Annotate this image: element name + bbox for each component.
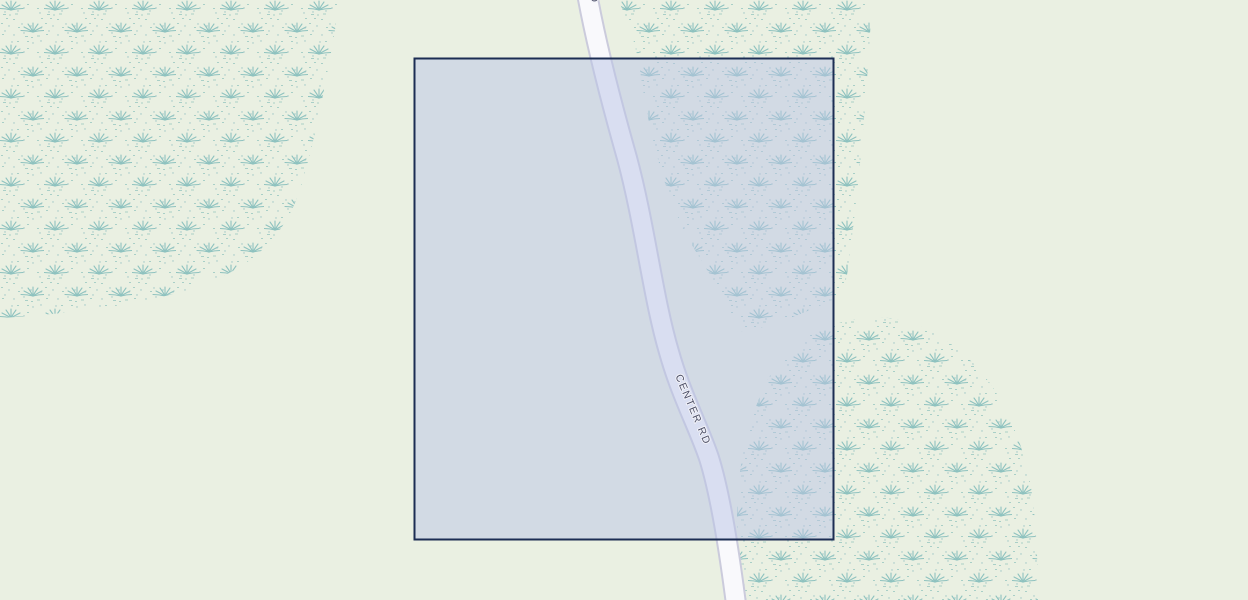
parcel-selection-boundary[interactable]: [415, 59, 834, 540]
map-viewport[interactable]: CENTER RD CENTER RD: [0, 0, 1248, 600]
map-canvas[interactable]: CENTER RD CENTER RD: [0, 0, 1248, 600]
